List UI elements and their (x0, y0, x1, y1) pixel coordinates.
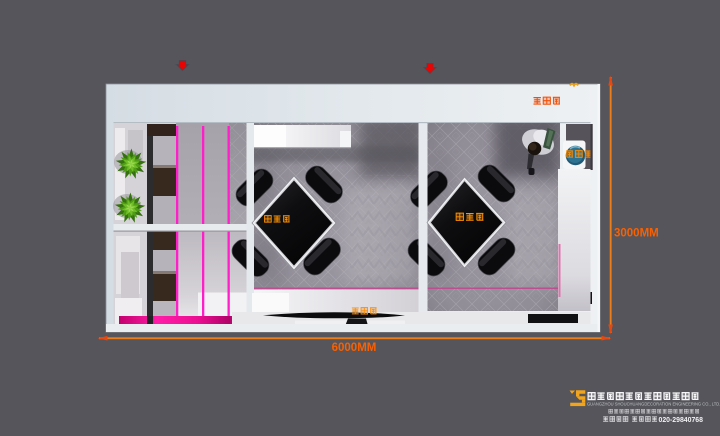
svg-text:3000MM: 3000MM (614, 228, 659, 240)
svg-text:GUANGZHOU SHOUCHUANGDECORATION: GUANGZHOU SHOUCHUANGDECORATION ENGINEERI… (587, 402, 720, 407)
svg-text:6000MM: 6000MM (332, 342, 377, 354)
svg-text:020-29840768: 020-29840768 (659, 417, 704, 424)
